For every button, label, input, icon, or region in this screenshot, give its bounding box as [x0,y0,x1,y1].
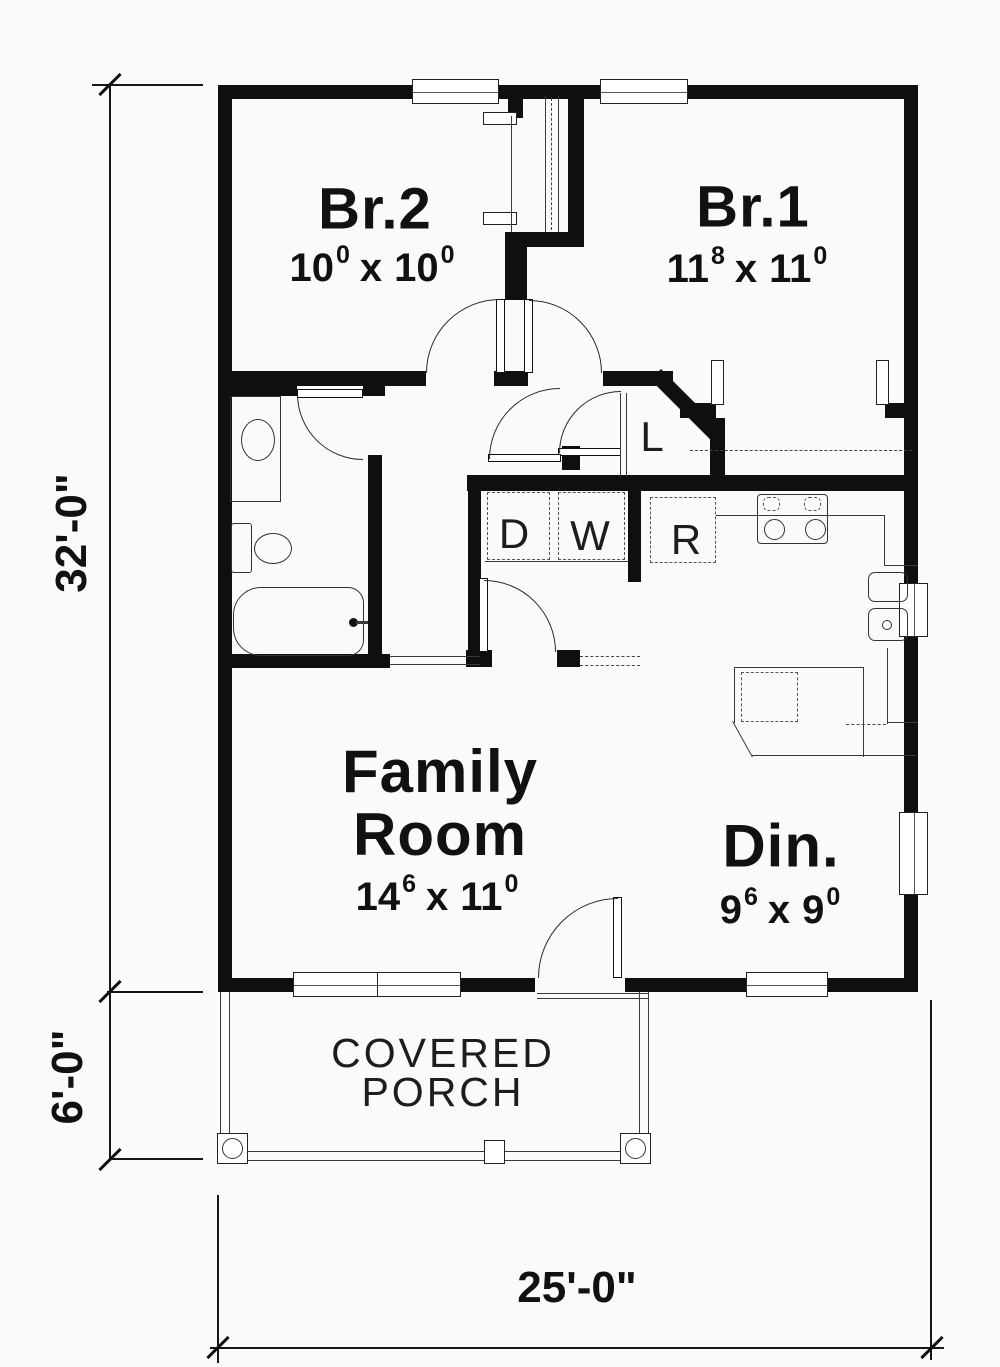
opening-line [390,656,480,657]
extension-line [112,1158,203,1160]
wall-segment [885,403,918,418]
wall-left [218,85,232,992]
porch-column-circle [222,1138,243,1159]
window-dining-bottom [746,972,828,997]
linen-wall-line [626,393,627,477]
porch-ceiling-line [537,998,649,999]
room-dims-br2: 100x100 [289,245,452,291]
kitchen-sink-basin [868,572,908,602]
dimension-line-vertical [109,85,111,1161]
bathtub [233,587,364,656]
counter-edge [884,515,885,566]
counter-edge [887,648,888,724]
wall-segment [557,650,580,667]
fixture-label-refrigerator: R [671,516,701,564]
counter-edge [752,755,916,756]
wall-segment [363,382,385,396]
counter-edge [734,667,863,668]
porch-step [484,1140,505,1164]
cased-opening-dashed [580,656,640,657]
window-dining-right [899,812,928,895]
closet-wall-line [511,116,512,232]
counter-dashed [846,724,886,725]
window-br1 [600,79,688,104]
porch-edge [220,1160,650,1161]
closet-track-line [545,96,546,232]
room-dims-dining: 96x90 [720,887,839,933]
counter-edge [863,667,864,757]
bathroom-sink [241,419,275,461]
fixture-label-linen: L [640,413,663,461]
opening-line [390,664,480,665]
porch-column-circle [625,1138,646,1159]
dimension-label-porch-height: 6'-0" [43,1030,93,1125]
room-dims-family: 146x110 [356,874,517,920]
counter-edge [884,565,918,566]
floor-plan-canvas: 32'-0" 6'-0" 25'-0" [0,0,1000,1367]
fixture-label-washer: W [570,512,610,560]
linen-wall-line [620,393,621,477]
stove-burner-rear [804,497,821,511]
dishwasher-box [741,672,798,722]
room-label-br2: Br.2 [318,176,432,243]
wall-segment [368,455,382,668]
stove-burner-rear [763,497,780,511]
room-label-dining: Din. [722,815,839,878]
counter-edge-angled [732,721,753,758]
wall-segment [467,475,918,491]
front-door-opening [535,976,625,994]
laundry-shelf-line [485,561,628,562]
stove-burner-front [805,519,826,540]
closet-jamb [711,360,724,405]
extension-line [107,991,203,993]
fixture-label-dryer: D [499,510,529,558]
wall-segment [494,371,528,386]
wall-segment [568,96,584,247]
porch-ceiling-line [537,993,649,994]
porch-edge [220,1151,650,1152]
window-br2 [412,79,499,104]
room-label-porch: COVEREDPORCH [331,1034,555,1112]
closet-rod-dashed [551,98,552,230]
extension-line [930,1000,932,1360]
room-label-br1: Br.1 [696,174,810,241]
wall-segment [218,654,390,668]
dimension-line-horizontal [210,1347,944,1349]
wall-segment [628,483,641,582]
toilet-bowl [254,533,292,564]
wall-segment [508,232,584,247]
counter-edge [734,667,735,723]
toilet-tank [231,523,252,573]
closet-track-line [558,96,559,232]
room-dims-br1: 118x110 [667,246,826,292]
room-label-family: FamilyRoom [342,740,538,866]
window-family [293,972,461,997]
cased-opening-dashed [580,665,640,666]
wall-segment [218,382,297,396]
wall-segment [680,403,716,418]
extension-line [217,1195,219,1363]
dimension-label-height: 32'-0" [47,473,97,592]
dimension-label-width: 25'-0" [517,1263,636,1313]
stove-burner-front [764,519,785,540]
closet-rod-dashed [690,450,912,451]
counter-edge [887,722,918,723]
closet-jamb [876,360,889,405]
kitchen-sink-drain [882,620,892,630]
tub-faucet-line [356,621,368,624]
